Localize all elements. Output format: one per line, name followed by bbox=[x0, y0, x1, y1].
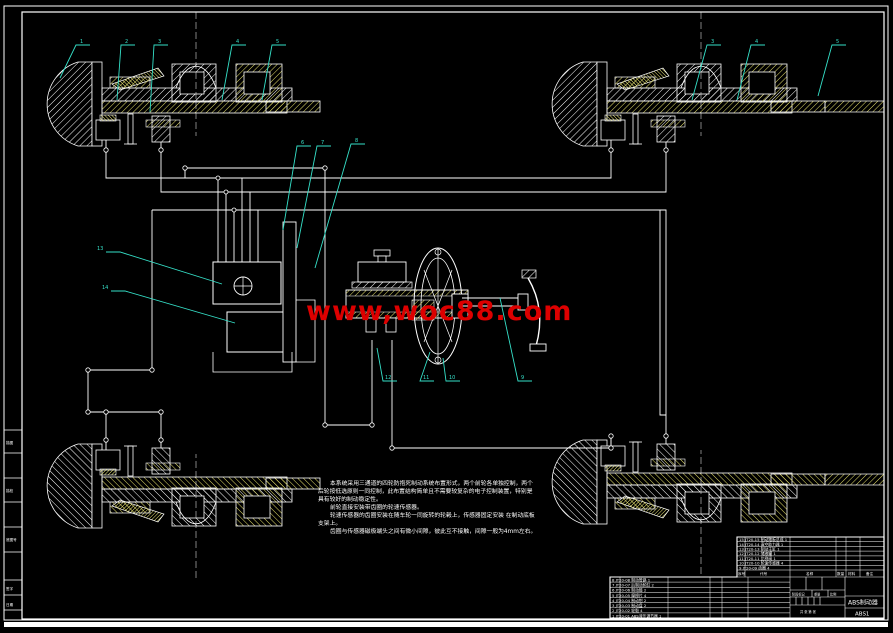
wheel-assembly-front-right bbox=[552, 12, 825, 150]
note-line: 轮速传感器的齿圈安装在随车轮一同旋转的轮毂上，传感器固定安装 在制动底板 bbox=[330, 511, 535, 519]
note-line: 具有较好的制动稳定性。 bbox=[318, 495, 382, 503]
leader-label: 10 bbox=[449, 375, 455, 381]
leader-label: 4 bbox=[755, 39, 758, 45]
note-line: 本系统采用三通道的四轮防抱死制动系统布置形式，两个前轮各单独控制，两个 bbox=[330, 479, 533, 487]
abs-modulator bbox=[213, 222, 315, 372]
bom-header-qty: 数量 bbox=[837, 571, 845, 576]
leader-label: 3 bbox=[711, 39, 714, 45]
leader-label: 2 bbox=[125, 39, 128, 45]
margin-box-label: 描图 bbox=[6, 440, 14, 445]
leader-label: 8 bbox=[355, 138, 358, 144]
bom-upper-table: 15 JT20-15 制动踏板总成 1 14 JT20-14 真空助力器 1 1… bbox=[737, 537, 884, 577]
leader-label: 3 bbox=[158, 39, 161, 45]
leader-label: 7 bbox=[321, 140, 324, 146]
bom-header-name: 名称 bbox=[806, 571, 814, 576]
bom-row: 1 JT20-01 ABS液压调节器 1 bbox=[612, 613, 662, 618]
wheel-assembly-rear-right bbox=[552, 436, 825, 574]
margin-box-label: 描校 bbox=[6, 488, 14, 493]
leader-label: 5 bbox=[836, 39, 839, 45]
bom-lower-table: 8 JT20-08 制动管路 1 7 JT20-07 后制动轮缸 2 6 JT2… bbox=[610, 577, 790, 618]
pedal-pad bbox=[530, 344, 546, 351]
reservoir-cap bbox=[374, 250, 390, 256]
bom-row: 9 JT20-09 齿圈 4 bbox=[739, 565, 770, 570]
note-line: 后轮按低选原则一同控制，此布置结构简单且不需要较复杂的电子控制装置，特别是 bbox=[318, 487, 533, 495]
note-line: 支架上。 bbox=[318, 519, 341, 527]
leader-label: 6 bbox=[301, 140, 304, 146]
margin-box-label: 底图号 bbox=[6, 537, 17, 542]
leader-label: 11 bbox=[423, 375, 429, 381]
title-area: 阶段标记 重量 比例 共 张 第 张 ABS制动器 ABS1 bbox=[790, 577, 884, 618]
drawing-number: ABS1 bbox=[855, 612, 869, 618]
leader-label: 13 bbox=[97, 246, 103, 252]
notes-block: 本系统采用三通道的四轮防抱死制动系统布置形式，两个前轮各单独控制，两个 后轮按低… bbox=[318, 479, 536, 535]
wheel-assembly-rear-left bbox=[47, 440, 320, 578]
title-block: 15 JT20-15 制动踏板总成 1 14 JT20-14 真空助力器 1 1… bbox=[610, 537, 884, 618]
leader-label: 5 bbox=[276, 39, 279, 45]
note-line: 前轮直接安装带齿圈的轮速传感器。 bbox=[330, 503, 423, 511]
axle-extension-top bbox=[825, 101, 884, 112]
watermark-text: www,woc88.com bbox=[306, 296, 572, 327]
stamp-stage-label: 阶段标记 bbox=[792, 592, 806, 597]
wheel-assembly-front-left bbox=[47, 12, 320, 150]
leader-label: 9 bbox=[521, 375, 524, 381]
margin-box-label: 签字 bbox=[6, 586, 14, 591]
leader-label: 12 bbox=[385, 375, 391, 381]
bom-header-remark: 备注 bbox=[866, 571, 874, 576]
bom-header-material: 材料 bbox=[848, 571, 856, 576]
leader-label: 1 bbox=[80, 39, 83, 45]
stamp-scale-label: 比例 bbox=[830, 592, 836, 597]
leader-label: 14 bbox=[102, 285, 108, 291]
leader-label: 4 bbox=[236, 39, 239, 45]
stamp-weight-label: 重量 bbox=[814, 592, 821, 597]
axle-extension-bottom bbox=[825, 474, 884, 485]
margin-box-label: 日期 bbox=[6, 602, 14, 607]
cad-sheet-page: 描图 描校 底图号 签字 日期 bbox=[0, 0, 893, 633]
bom-header-code: 代号 bbox=[760, 571, 768, 576]
stamp-sheet-label: 共 张 第 张 bbox=[800, 609, 817, 614]
cad-sheet: 描图 描校 底图号 签字 日期 bbox=[0, 0, 893, 633]
drawing-name: ABS制动器 bbox=[848, 599, 878, 607]
note-line: 齿圈与传感器磁极端头之间有微小间隙，彼此互不接触，间隙一般为4mm左右。 bbox=[330, 527, 536, 535]
bom-header-no: 序号 bbox=[738, 571, 746, 576]
margin-strip: 描图 描校 底图号 签字 日期 bbox=[4, 430, 22, 610]
reservoir bbox=[358, 262, 406, 282]
